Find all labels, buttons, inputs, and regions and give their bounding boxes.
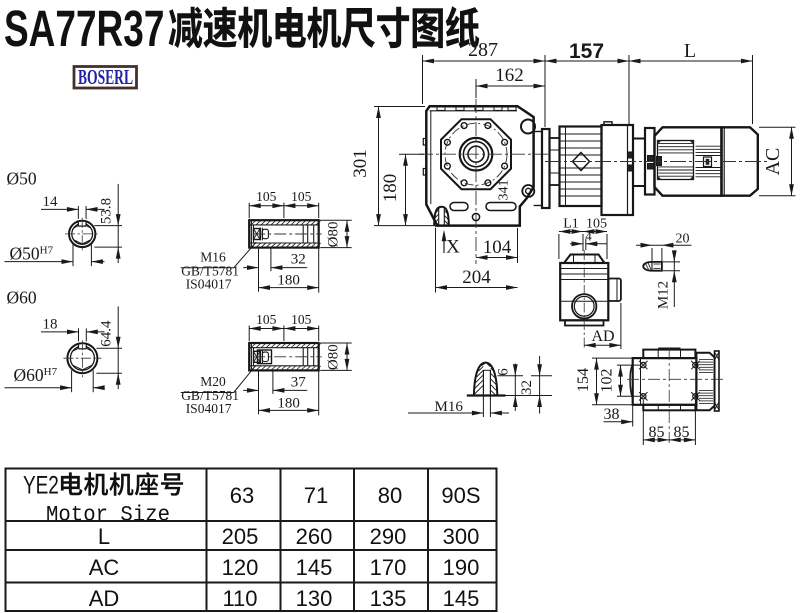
svg-text:130: 130: [296, 586, 333, 611]
svg-text:18: 18: [43, 316, 58, 332]
svg-text:85: 85: [649, 424, 665, 441]
svg-text:190: 190: [443, 555, 480, 580]
svg-text:IS04017: IS04017: [186, 276, 232, 291]
svg-text:32: 32: [519, 380, 535, 395]
svg-text:X: X: [446, 237, 460, 258]
svg-text:180: 180: [277, 273, 300, 289]
svg-text:204: 204: [462, 267, 491, 288]
svg-text:Ø60: Ø60: [7, 288, 37, 308]
svg-text:L1: L1: [563, 217, 579, 232]
svg-text:YE2: YE2: [23, 471, 59, 499]
svg-text:IS04017: IS04017: [186, 401, 232, 416]
svg-text:145: 145: [443, 586, 480, 611]
svg-text:135: 135: [370, 586, 407, 611]
svg-text:Ø60H7: Ø60H7: [14, 365, 58, 385]
svg-text:180: 180: [277, 395, 300, 411]
svg-text:14: 14: [43, 194, 59, 210]
svg-text:71: 71: [304, 483, 328, 508]
svg-text:38: 38: [604, 406, 620, 423]
svg-text:105: 105: [291, 312, 312, 327]
svg-text:BOSERL: BOSERL: [78, 65, 133, 89]
svg-text:Ø80: Ø80: [326, 344, 342, 370]
svg-text:341: 341: [497, 180, 512, 201]
svg-text:AD: AD: [591, 328, 614, 345]
svg-text:110: 110: [222, 586, 257, 611]
svg-text:37: 37: [291, 374, 307, 390]
svg-text:AD: AD: [89, 586, 120, 611]
svg-text:154: 154: [575, 368, 592, 392]
svg-text:157: 157: [569, 40, 604, 63]
svg-text:4: 4: [585, 229, 592, 244]
svg-text:290: 290: [370, 524, 407, 549]
svg-text:53.8: 53.8: [99, 198, 115, 224]
svg-text:SA77R37: SA77R37: [4, 1, 164, 57]
svg-text:105: 105: [291, 189, 312, 204]
svg-text:M16: M16: [435, 399, 464, 415]
svg-text:120: 120: [222, 555, 259, 580]
svg-text:M12: M12: [656, 281, 672, 309]
svg-text:Ø50H7: Ø50H7: [10, 244, 54, 264]
svg-text:102: 102: [599, 369, 616, 393]
svg-text:170: 170: [370, 555, 407, 580]
svg-text:M16: M16: [200, 249, 226, 264]
svg-text:Ø80: Ø80: [326, 221, 342, 247]
svg-text:104: 104: [483, 237, 512, 258]
svg-text:AC: AC: [762, 148, 784, 176]
svg-text:300: 300: [443, 524, 480, 549]
svg-text:105: 105: [256, 312, 277, 327]
svg-text:162: 162: [495, 65, 524, 86]
svg-text:80: 80: [378, 483, 402, 508]
svg-text:287: 287: [468, 39, 498, 61]
svg-text:64.4: 64.4: [99, 320, 115, 347]
svg-text:180: 180: [380, 174, 401, 203]
svg-text:20: 20: [676, 232, 690, 247]
svg-text:260: 260: [296, 524, 333, 549]
svg-text:Ø50: Ø50: [7, 169, 37, 189]
svg-text:63: 63: [230, 483, 254, 508]
svg-text:145: 145: [296, 555, 333, 580]
svg-text:6: 6: [496, 368, 512, 376]
svg-text:AC: AC: [89, 555, 120, 580]
svg-text:205: 205: [222, 524, 259, 549]
svg-text:32: 32: [291, 252, 306, 268]
svg-text:105: 105: [256, 189, 277, 204]
svg-text:L: L: [684, 40, 696, 62]
svg-text:90S: 90S: [441, 483, 480, 508]
svg-text:M20: M20: [200, 374, 226, 389]
svg-text:301: 301: [350, 149, 371, 178]
svg-text:L: L: [98, 524, 110, 549]
svg-text:85: 85: [674, 424, 690, 441]
